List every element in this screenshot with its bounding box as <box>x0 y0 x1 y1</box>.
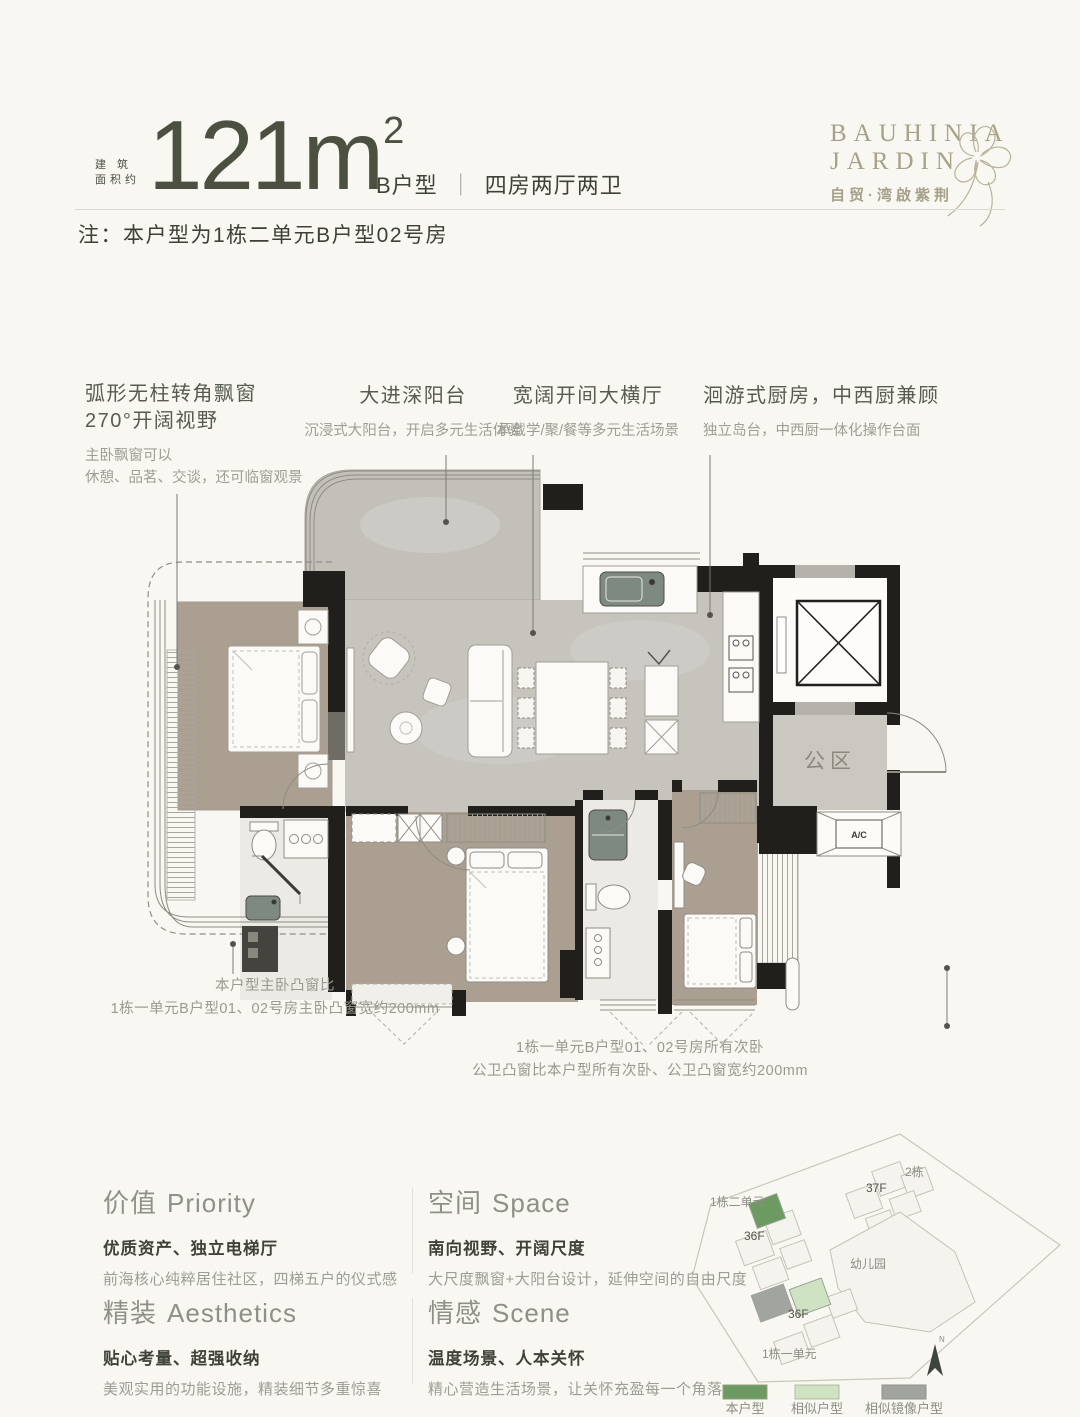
bauhinia-flower-icon <box>938 116 1022 247</box>
measure-note-mid: 1栋一单元B户型01、02号房所有次卧 公卫凸窗比本户型所有次卧、公卫凸窗宽约2… <box>425 1037 855 1083</box>
callout-kitchen: 洄游式厨房，中西厨兼顾 独立岛台，中西厨一体化操作台面 <box>703 383 940 442</box>
callout4-title: 洄游式厨房，中西厨兼顾 <box>703 383 940 410</box>
feature-priority: 价值Priority 优质资产、独立电梯厅 前海核心纯粹居住社区，四梯五户的仪式… <box>103 1183 403 1289</box>
public-area-label: 公区 <box>804 750 856 773</box>
legend-swatch-mirror-unit <box>882 1385 926 1399</box>
ac-label: A/C <box>851 830 867 840</box>
area-value: 121m <box>148 110 381 200</box>
right-bay-hatch <box>757 843 798 963</box>
feature2-title-en: Space <box>492 1188 571 1218</box>
feature4-title-en: Scene <box>492 1298 571 1328</box>
area-block: 建 筑 面积约 121m 2 <box>95 110 401 200</box>
measure-note-mid-line2: 公卫凸窗比本户型所有次卧、公卫凸窗宽约200mm <box>425 1060 855 1083</box>
siteplan-legend: 本户型 相似户型 相似镜像户型 <box>723 1385 943 1416</box>
plan-note: 注：本户型为1栋二单元B户型02号房 <box>78 219 448 249</box>
label-36f-top: 36F <box>744 1229 765 1243</box>
callout1-title-line2: 270°开阔视野 <box>85 408 303 435</box>
unit-type: B户型 ｜ 四房两厅两卫 <box>376 168 623 200</box>
feature3-desc: 美观实用的功能设施，精装细节多重惊喜 <box>103 1378 403 1399</box>
feature-column-divider-top <box>412 1188 413 1274</box>
feature1-title-cn: 价值 <box>103 1188 157 1218</box>
label-tower1-unit2: 1栋二单元 <box>710 1194 765 1209</box>
legend-label-this-unit: 本户型 <box>725 1401 764 1416</box>
legend-label-similar-unit: 相似户型 <box>791 1401 843 1416</box>
feature2-title-cn: 空间 <box>428 1188 482 1218</box>
brochure-page: 建 筑 面积约 121m 2 B户型 ｜ 四房两厅两卫 BAUHINIA JAR… <box>0 0 1080 1417</box>
unit-description: 四房两厅两卫 <box>485 168 623 200</box>
feature3-title-cn: 精装 <box>103 1298 157 1328</box>
callout3-sub: 承载学/聚/餐等多元生活场景 <box>478 420 698 442</box>
measure-note-left-line2: 1栋一单元B户型01、02号房主卧凸窗宽约200mm <box>70 998 480 1021</box>
measure-note-mid-line1: 1栋一单元B户型01、02号房所有次卧 <box>425 1037 855 1060</box>
feature-aesthetics: 精装Aesthetics 贴心考量、超强收纳 美观实用的功能设施，精装细节多重惊… <box>103 1293 403 1399</box>
bay-seat-hatch <box>167 650 195 900</box>
callout4-sub: 独立岛台，中西厨一体化操作台面 <box>703 420 940 442</box>
feature1-desc: 前海核心纯粹居住社区，四梯五户的仪式感 <box>103 1268 403 1289</box>
area-prefix-line1: 建 筑 <box>95 158 140 173</box>
compass-north: N <box>927 1335 945 1376</box>
unit-label: B户型 <box>376 168 438 200</box>
callout3-title: 宽阔开间大横厅 <box>478 383 698 410</box>
siteplan-drawing: 1栋二单元 2栋 37F 36F 幼儿园 36F 1栋一单元 N 本户型 相似户… <box>680 1128 1080 1417</box>
header-divider <box>75 209 1005 210</box>
floorplan-drawing: A/C 公区 <box>130 455 950 1045</box>
label-kindergarten: 幼儿园 <box>850 1257 886 1271</box>
callout1-title-line1: 弧形无柱转角飘窗 <box>85 381 303 408</box>
feature1-title-en: Priority <box>167 1188 256 1218</box>
callout-living: 宽阔开间大横厅 承载学/聚/餐等多元生活场景 <box>478 383 698 442</box>
area-number: 121m 2 <box>148 110 401 200</box>
feature3-subtitle: 贴心考量、超强收纳 <box>103 1345 403 1369</box>
area-superscript: 2 <box>383 112 401 150</box>
feature4-title-cn: 情感 <box>428 1298 482 1328</box>
legend-swatch-similar-unit <box>795 1385 839 1399</box>
highlight-mirror-unit <box>751 1284 793 1322</box>
north-label: N <box>939 1335 945 1344</box>
unit-divider: ｜ <box>450 168 473 200</box>
feature1-subtitle: 优质资产、独立电梯厅 <box>103 1235 403 1259</box>
label-36f-bottom: 36F <box>788 1307 809 1321</box>
feature3-title-en: Aesthetics <box>167 1298 297 1328</box>
area-prefix: 建 筑 面积约 <box>95 158 140 188</box>
area-prefix-line2: 面积约 <box>95 173 140 188</box>
label-37f: 37F <box>866 1181 887 1195</box>
feature-column-divider-bottom <box>412 1298 413 1384</box>
measure-note-left: 本户型主卧凸窗比 1栋一单元B户型01、02号房主卧凸窗宽约200mm <box>70 975 480 1021</box>
label-tower1-unit1: 1栋一单元 <box>762 1346 817 1361</box>
measure-note-left-line1: 本户型主卧凸窗比 <box>70 975 480 998</box>
ac-closet: A/C <box>817 812 901 856</box>
legend-swatch-this-unit <box>723 1385 767 1399</box>
legend-label-mirror-unit: 相似镜像户型 <box>865 1401 943 1416</box>
label-tower2: 2栋 <box>905 1164 924 1179</box>
